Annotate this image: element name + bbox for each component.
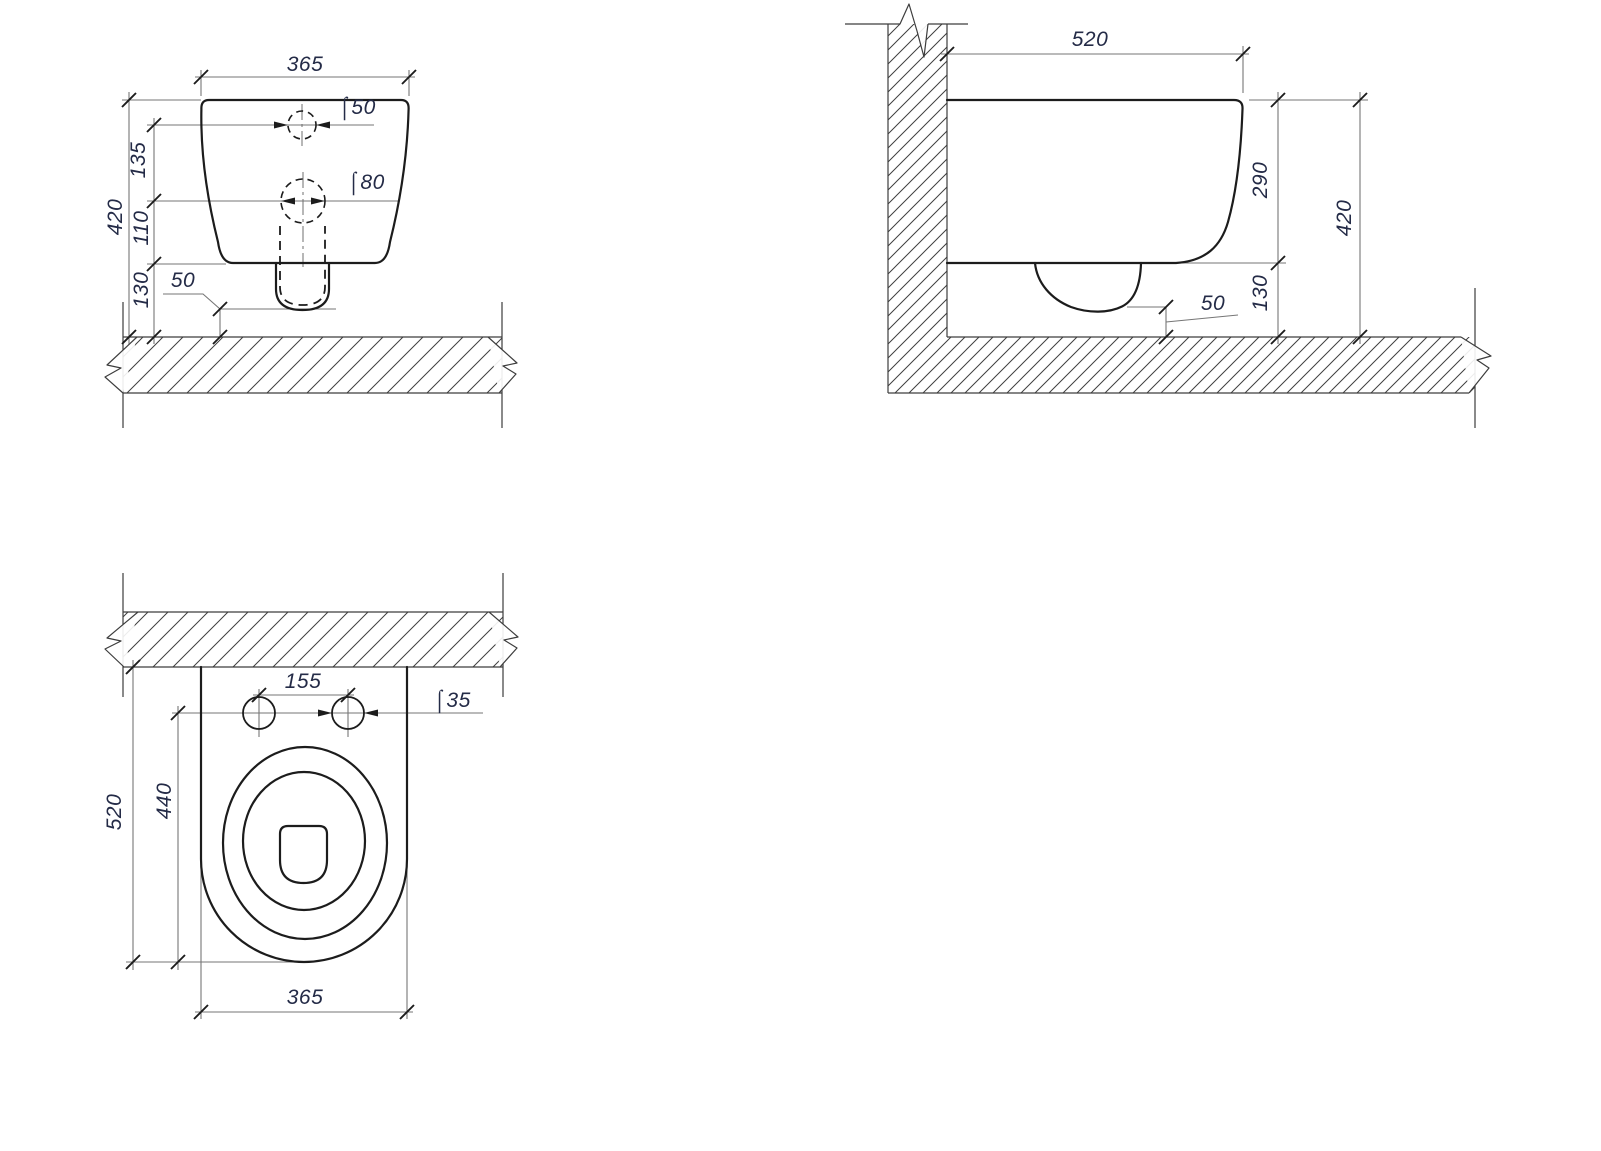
plan-depth-label: 520: [103, 794, 126, 831]
front-outlet-outline: [276, 263, 329, 310]
side-dim130-label: 130: [1249, 275, 1272, 312]
plan-hole-dia-label: ⌠35: [433, 689, 471, 714]
side-wall-floor-hatch: [888, 24, 1475, 393]
dia50-arrow-right: [316, 122, 330, 129]
front-dim110-label: 110: [130, 211, 153, 246]
front-width-label: 365: [287, 53, 324, 76]
side-dim290-label: 290: [1249, 162, 1272, 200]
side-trap-outline: [1035, 263, 1141, 312]
side-dim420-label: 420: [1333, 200, 1356, 237]
dia35-arrow-right: [364, 710, 378, 717]
front-dim50-label: 50: [171, 269, 195, 292]
dia50-arrow-left: [274, 122, 288, 129]
technical-drawing: 365 ⌠50 ⌠80 135 420 110 130 50 520 290 4…: [0, 0, 1601, 1151]
side-dim50-label: 50: [1201, 292, 1225, 315]
dia80-arrow-left: [281, 198, 295, 205]
plan-view: 155 ⌠35 520 440 365: [103, 573, 518, 1019]
side-dimension-ticks: [940, 47, 1367, 344]
side-depth-label: 520: [1072, 28, 1109, 51]
dia35-arrow-left: [318, 710, 332, 717]
front-hole50-label: ⌠50: [338, 96, 376, 121]
plan-bowl-inner: [243, 772, 365, 910]
front-dim135-label: 135: [127, 142, 150, 179]
side-dimension-lines: [941, 46, 1368, 344]
side-fixture-outline: [947, 100, 1243, 263]
plan-dimension-lines: [126, 660, 483, 1019]
front-centerlines: [302, 104, 303, 267]
front-hole80-label: ⌠80: [347, 171, 385, 196]
side-view: 520 290 420 130 50: [845, 4, 1491, 428]
front-dim420-label: 420: [104, 199, 127, 236]
front-floor-hatch: [123, 337, 502, 393]
front-view: 365 ⌠50 ⌠80 135 420 110 130 50: [104, 53, 517, 428]
drawing-canvas: 365 ⌠50 ⌠80 135 420 110 130 50 520 290 4…: [0, 0, 1601, 1151]
plan-width-label: 365: [287, 986, 324, 1009]
front-dim130-label: 130: [130, 272, 153, 309]
plan-flush-opening: [280, 826, 327, 883]
plan-spacing-label: 155: [285, 670, 322, 693]
dia80-arrow-right: [311, 198, 325, 205]
plan-dim440-label: 440: [153, 783, 176, 820]
plan-wall-hatch: [123, 612, 503, 667]
